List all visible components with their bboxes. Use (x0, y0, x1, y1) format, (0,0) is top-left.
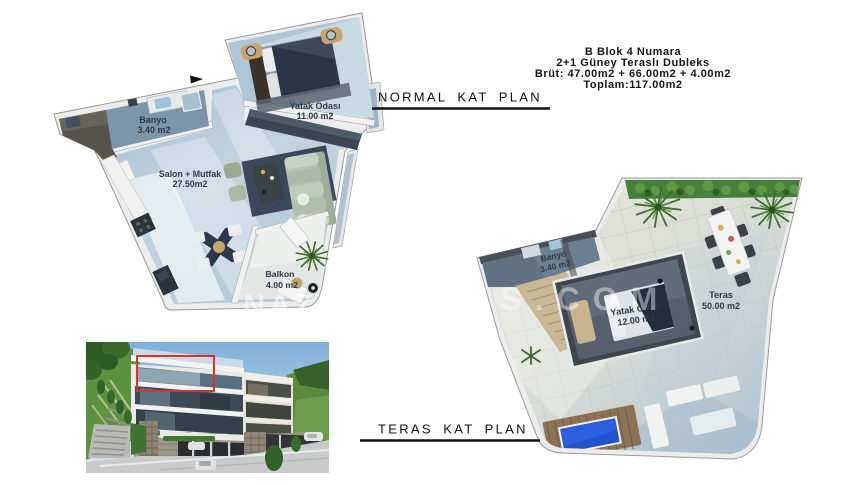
svg-text:Teras: Teras (709, 290, 733, 300)
svg-text:11.00 m2: 11.00 m2 (297, 111, 334, 121)
svg-text:Salon + Mutfak: Salon + Mutfak (159, 169, 221, 179)
svg-text:3.40 m2: 3.40 m2 (137, 125, 170, 135)
svg-text:TERAS KAT PLAN: TERAS KAT PLAN (378, 422, 528, 437)
svg-text:Toplam:117.00m2: Toplam:117.00m2 (583, 79, 682, 91)
svg-text:ES.COM: ES.COM (466, 281, 670, 317)
svg-text:NORMAL KAT PLAN: NORMAL KAT PLAN (378, 90, 542, 105)
svg-text:Yatak Odası: Yatak Odası (289, 101, 340, 111)
svg-text:Balkon: Balkon (266, 269, 295, 279)
svg-text:Banyo: Banyo (139, 115, 167, 125)
svg-text:50.00 m2: 50.00 m2 (702, 301, 740, 311)
svg-text:27.50m2: 27.50m2 (173, 179, 208, 189)
svg-text:NAZ: NAZ (243, 289, 317, 322)
